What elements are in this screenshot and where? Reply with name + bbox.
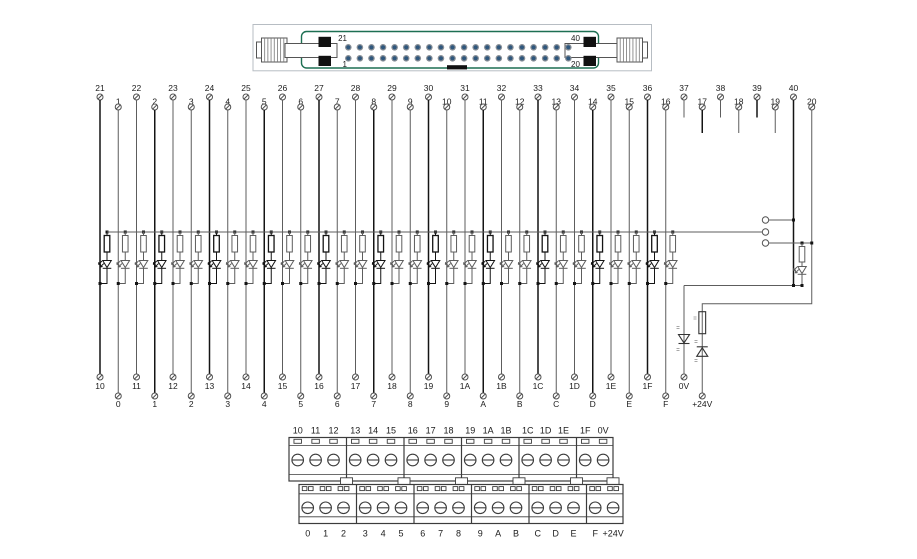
connector-pin-core [497, 56, 501, 60]
junction-dot [135, 282, 138, 285]
interlock-tab [571, 478, 583, 485]
branch-wire [283, 268, 290, 283]
series-resistor [141, 236, 147, 253]
channel-led [322, 261, 331, 268]
block-terminal-label: 19 [465, 426, 475, 436]
junction-dot [190, 282, 193, 285]
connector-pin-number: 20 [571, 60, 580, 69]
junction-dot [500, 282, 503, 285]
top-pin-label: 25 [241, 83, 251, 93]
bottom-pin-label: E [626, 399, 632, 409]
wire-slot [338, 487, 343, 491]
branch-wire [191, 268, 198, 283]
block-terminal-label: 10 [293, 426, 303, 436]
branch-wire [593, 268, 600, 283]
series-resistor [287, 236, 293, 253]
top-pin-label: 40 [789, 83, 799, 93]
branch-wire [611, 268, 618, 283]
interface-module-wiring-diagram: 2110102211212312322413432514542615652716… [0, 0, 917, 559]
junction-dot [518, 282, 521, 285]
series-resistor [396, 236, 402, 253]
branch-wire [118, 268, 125, 283]
series-resistor [579, 236, 585, 253]
bottom-pin-label: 3 [225, 399, 230, 409]
block-terminal-label: 13 [350, 426, 360, 436]
bottom-pin-label: 14 [241, 381, 251, 391]
branch-wire [374, 268, 381, 283]
bottom-pin-label: 16 [314, 381, 324, 391]
component-mark [677, 349, 680, 351]
bottom-pin-label: 15 [278, 381, 288, 391]
series-resistor [341, 236, 347, 253]
block-terminal-label: 3 [363, 529, 368, 539]
wire-slot [493, 487, 498, 491]
connector-pin-core [416, 45, 420, 49]
bottom-pin-label: A [480, 399, 486, 409]
wire-slot [384, 487, 389, 491]
series-resistor [670, 236, 676, 253]
connector-pin-core [381, 45, 385, 49]
channel-led [413, 261, 422, 268]
junction-dot [464, 282, 467, 285]
wire-slot [330, 439, 338, 443]
junction-dot [372, 282, 375, 285]
connector-pin-number: 40 [571, 34, 580, 43]
channel-led [376, 261, 385, 268]
series-resistor [268, 236, 274, 253]
wire-slot [369, 439, 377, 443]
block-terminal-label: 17 [426, 426, 436, 436]
wire-slot [517, 487, 522, 491]
plus24-feed-wire [702, 110, 812, 393]
junction-dot [792, 284, 795, 287]
bottom-pin-label: 9 [444, 399, 449, 409]
wire-slot [608, 487, 613, 491]
top-pin-label: 35 [606, 83, 616, 93]
wire-slot [599, 439, 607, 443]
branch-wire [356, 268, 363, 283]
branch-wire [538, 268, 545, 283]
wire-slot [614, 487, 619, 491]
wire-slot [539, 487, 544, 491]
wire-slot [309, 487, 314, 491]
junction-dot [391, 282, 394, 285]
connector-pin-core [358, 45, 362, 49]
connector-pin-core [531, 45, 535, 49]
connector-pin-core [427, 45, 431, 49]
channel-led [614, 261, 623, 268]
polarization-block [584, 37, 597, 47]
series-resistor [524, 236, 530, 253]
channel-led [303, 261, 312, 268]
branch-wire [483, 268, 490, 283]
block-terminal-label: 1A [483, 426, 494, 436]
block-terminal-label: F [592, 529, 598, 539]
branch-wire [210, 268, 217, 283]
series-resistor [214, 236, 220, 253]
junction-dot [208, 282, 211, 285]
interlock-tab [513, 478, 525, 485]
wire-slot [590, 487, 595, 491]
bottom-pin-label: 1D [569, 381, 580, 391]
junction-dot [299, 282, 302, 285]
bottom-pin-label: 11 [132, 381, 141, 391]
branch-wire [575, 268, 582, 283]
polarization-block [319, 56, 332, 66]
bottom-pin-label: 1F [643, 381, 653, 391]
junction-dot [555, 282, 558, 285]
top-pin-label: 34 [570, 83, 580, 93]
branch-wire [246, 268, 253, 283]
block-terminal-label: 0V [598, 426, 609, 436]
junction-dot [610, 282, 613, 285]
block-terminal-label: B [513, 529, 519, 539]
top-pin-label: 26 [278, 83, 288, 93]
top-pin-label: 27 [314, 83, 324, 93]
channel-led [595, 261, 604, 268]
series-resistor [250, 236, 256, 253]
series-resistor [469, 236, 475, 253]
channel-led [194, 261, 203, 268]
branch-wire [337, 268, 344, 283]
branch-wire [301, 268, 308, 283]
bottom-pin-label: 17 [351, 381, 361, 391]
connector-pin-core [555, 56, 559, 60]
wire-slot [441, 487, 446, 491]
clamp-end [257, 42, 262, 58]
wire-slot [550, 487, 555, 491]
connector-pin-core [393, 56, 397, 60]
branch-wire [392, 268, 399, 283]
bottom-pin-label: 19 [424, 381, 434, 391]
channel-led [157, 261, 166, 268]
wire-slot [351, 439, 359, 443]
series-resistor [360, 236, 366, 253]
branch-wire [100, 268, 107, 283]
connector-pin-core [439, 45, 443, 49]
top-pin-label: 22 [132, 83, 142, 93]
block-terminal-label: 11 [311, 426, 320, 436]
component-mark [695, 360, 698, 362]
connector-pin-core [485, 56, 489, 60]
block-terminal-label: 16 [408, 426, 418, 436]
block-terminal-label: +24V [602, 529, 623, 539]
connector-pin-core [369, 45, 373, 49]
wire-slot [360, 487, 365, 491]
bottom-pin-label: 6 [335, 399, 340, 409]
bottom-pin-label: 1B [496, 381, 507, 391]
series-resistor [323, 236, 329, 253]
connector-pin-core [416, 56, 420, 60]
connector-pin-core [450, 45, 454, 49]
wire-slot [568, 487, 573, 491]
channel-led [230, 261, 239, 268]
block-terminal-label: 7 [438, 529, 443, 539]
junction-dot [591, 282, 594, 285]
connector-pin-core [520, 45, 524, 49]
wire-slot [409, 439, 417, 443]
series-resistor [104, 236, 110, 253]
block-terminal-label: 8 [456, 529, 461, 539]
wire-slot [560, 439, 568, 443]
block-terminal-label: 12 [328, 426, 338, 436]
wire-slot [402, 487, 407, 491]
channel-led [340, 261, 349, 268]
junction-dot [99, 282, 102, 285]
block-terminal-label: 4 [381, 529, 386, 539]
branch-wire [502, 268, 509, 283]
junction-dot [153, 282, 156, 285]
top-pin-label: 32 [497, 83, 507, 93]
top-pin-label: 38 [716, 83, 726, 93]
interlock-tab [398, 478, 410, 485]
top-pin-label: 33 [533, 83, 543, 93]
wire-slot [424, 487, 429, 491]
channel-led [577, 261, 586, 268]
top-pin-label: 29 [387, 83, 397, 93]
channel-led [504, 261, 513, 268]
connector-pin-core [566, 45, 570, 49]
junction-dot [409, 282, 412, 285]
wire-slot [435, 487, 440, 491]
channel-led [212, 261, 221, 268]
connector-pin-core [566, 56, 570, 60]
junction-dot [172, 282, 175, 285]
junction-dot [792, 219, 795, 222]
channel-led [650, 261, 659, 268]
wire-slot [396, 487, 401, 491]
junction-dot [537, 282, 540, 285]
block-terminal-label: E [570, 529, 576, 539]
connector-pin-core [474, 56, 478, 60]
block-terminal-label: 18 [443, 426, 453, 436]
channel-led [285, 261, 294, 268]
bottom-pin-label: 1A [460, 381, 471, 391]
connector-pin-core [485, 45, 489, 49]
connector-pin-number: 1 [343, 60, 348, 69]
channel-led [486, 261, 495, 268]
bottom-pin-label: D [590, 399, 596, 409]
branch-wire [629, 268, 636, 283]
channel-led [431, 261, 440, 268]
bottom-pin-label: 1C [533, 381, 544, 391]
bottom-pin-label: 8 [408, 399, 413, 409]
block-terminal-label: D [552, 529, 559, 539]
branch-wire [155, 268, 162, 283]
series-resistor [597, 236, 603, 253]
series-resistor [451, 236, 457, 253]
wire-slot [499, 487, 504, 491]
block-terminal-label: 5 [398, 529, 403, 539]
wire-slot [484, 439, 492, 443]
branch-wire [648, 268, 655, 283]
block-terminal-label: 1 [323, 529, 328, 539]
channel-led [449, 261, 458, 268]
block-terminal-label: A [495, 529, 501, 539]
component-mark [695, 341, 698, 343]
bottom-pin-label: 13 [205, 381, 215, 391]
connector-pin-core [462, 56, 466, 60]
top-pin-label: 23 [168, 83, 178, 93]
junction-dot [801, 284, 804, 287]
branch-wire [666, 268, 673, 283]
branch-wire [520, 268, 527, 283]
top-pin-label: 31 [460, 83, 470, 93]
connector-pin-core [358, 56, 362, 60]
bottom-pin-label: 4 [262, 399, 267, 409]
junction-dot [318, 282, 321, 285]
interlock-tab [456, 478, 468, 485]
wire-slot [387, 439, 395, 443]
wire-slot [466, 439, 474, 443]
wire-slot [294, 439, 302, 443]
top-pin-label: 24 [205, 83, 215, 93]
branch-wire [173, 268, 180, 283]
channel-led [176, 261, 185, 268]
wire-slot [453, 487, 458, 491]
series-resistor [159, 236, 165, 253]
connector-pin-core [369, 56, 373, 60]
bottom-pin-label: 2 [189, 399, 194, 409]
connector-pin-core [381, 56, 385, 60]
wire-slot [574, 487, 579, 491]
block-terminal-label: 14 [368, 426, 378, 436]
branch-wire [429, 268, 436, 283]
bottom-pin-label: 0 [116, 399, 121, 409]
branch-wire [264, 268, 271, 283]
series-resistor [232, 236, 238, 253]
block-terminal-label: 1E [558, 426, 569, 436]
channel-led [121, 261, 130, 268]
bottom-pin-label: 1 [152, 399, 157, 409]
connector-pin-core [497, 45, 501, 49]
wire-slot [427, 439, 435, 443]
series-resistor [305, 236, 311, 253]
block-terminal-label: 6 [420, 529, 425, 539]
block-terminal-label: 1F [580, 426, 591, 436]
connector-pin-core [393, 45, 397, 49]
wire-slot [596, 487, 601, 491]
bottom-pin-label: 7 [371, 399, 376, 409]
polarization-block [584, 56, 597, 66]
branch-wire [410, 268, 417, 283]
branch-wire [228, 268, 235, 283]
polarization-block [319, 37, 332, 47]
branch-wire [447, 268, 454, 283]
junction-dot [226, 282, 229, 285]
channel-led [249, 261, 258, 268]
bottom-pin-label: B [517, 399, 523, 409]
branch-wire [137, 268, 144, 283]
channel-led [395, 261, 404, 268]
series-resistor [487, 236, 493, 253]
wire-slot [481, 487, 486, 491]
junction-dot [263, 282, 266, 285]
channel-led [522, 261, 531, 268]
connector-pin-core [508, 45, 512, 49]
block-terminal-label: C [534, 529, 541, 539]
series-resistor [652, 236, 658, 253]
connector-pin-core [508, 56, 512, 60]
junction-dot [117, 282, 120, 285]
junction-dot [810, 242, 813, 245]
connector-pin-number: 21 [338, 34, 347, 43]
block-terminal-label: 9 [478, 529, 483, 539]
wire-slot [366, 487, 371, 491]
connector-pin-core [555, 45, 559, 49]
wire-slot [326, 487, 331, 491]
series-resistor [506, 236, 512, 253]
wire-slot [344, 487, 349, 491]
wire-slot [524, 439, 532, 443]
wire-slot [320, 487, 325, 491]
junction-dot [628, 282, 631, 285]
bottom-pin-label: 12 [168, 381, 178, 391]
junction-dot [427, 282, 430, 285]
connector-pin-core [543, 45, 547, 49]
wire-slot [475, 487, 480, 491]
junction-dot [354, 282, 357, 285]
block-terminal-label: 1D [540, 426, 552, 436]
wire-slot [502, 439, 510, 443]
wire-slot [532, 487, 537, 491]
channel-led [632, 261, 641, 268]
wire-slot [302, 487, 307, 491]
wire-slot [581, 439, 589, 443]
connector-pin-core [531, 56, 535, 60]
connector-pin-core [543, 56, 547, 60]
channel-led [139, 261, 148, 268]
clamp-end [643, 42, 648, 58]
channel-led [559, 261, 568, 268]
wire-slot [511, 487, 516, 491]
series-resistor [414, 236, 420, 253]
junction-dot [336, 282, 339, 285]
junction-dot [646, 282, 649, 285]
schematic-page: 2110102211212312322413432514542615652716… [0, 0, 917, 559]
connector-pin-core [346, 45, 350, 49]
jumper-pad [762, 217, 768, 223]
wire-slot [312, 439, 320, 443]
bottom-pin-label: 1E [606, 381, 617, 391]
wire-slot [445, 439, 453, 443]
series-resistor [433, 236, 439, 253]
interlock-tab [341, 478, 353, 485]
junction-dot [445, 282, 448, 285]
series-resistor [195, 236, 201, 253]
channel-led [358, 261, 367, 268]
wire-slot [378, 487, 383, 491]
series-resistor [560, 236, 566, 253]
block-terminal-label: 1C [522, 426, 534, 436]
bottom-pin-label: 10 [95, 381, 105, 391]
branch-wire [556, 268, 563, 283]
series-resistor [378, 236, 384, 253]
power-led [798, 267, 807, 274]
connector-pin-core [462, 45, 466, 49]
channel-led [541, 261, 550, 268]
top-pin-label: 39 [752, 83, 762, 93]
connector-pin-core [450, 56, 454, 60]
jumper-pad [762, 229, 768, 235]
block-terminal-label: 15 [386, 426, 396, 436]
wire-slot [542, 439, 550, 443]
component-mark [694, 317, 697, 319]
interlock-tab [607, 478, 619, 485]
top-pin-label: 30 [424, 83, 434, 93]
block-terminal-label: 1B [500, 426, 511, 436]
connector-pin-core [439, 56, 443, 60]
